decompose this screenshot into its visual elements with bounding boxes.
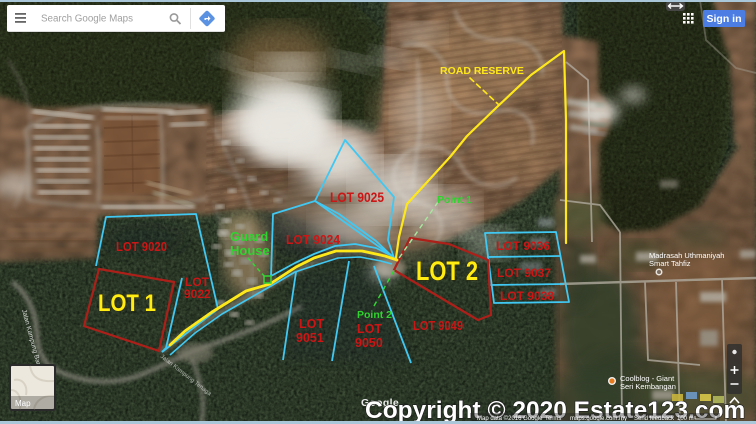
svg-text:LOT 9036: LOT 9036: [496, 239, 550, 253]
svg-text:9022: 9022: [184, 287, 211, 301]
svg-text:LOT 1: LOT 1: [98, 290, 156, 317]
svg-text:LOT 9024: LOT 9024: [286, 232, 341, 247]
svg-text:Smart Tahfiz: Smart Tahfiz: [649, 259, 691, 268]
svg-text:9051: 9051: [296, 331, 324, 345]
svg-text:Point 2: Point 2: [357, 309, 392, 321]
svg-text:Map: Map: [15, 399, 31, 408]
svg-text:Map data ©2016 Google: Map data ©2016 Google: [477, 415, 543, 422]
svg-text:LOT 9037: LOT 9037: [497, 266, 551, 280]
svg-text:LOT 2: LOT 2: [416, 256, 478, 286]
svg-text:LOT 9025: LOT 9025: [330, 190, 384, 205]
svg-text:Seri Kembangan: Seri Kembangan: [620, 382, 676, 391]
svg-text:LOT: LOT: [357, 322, 382, 336]
svg-text:Point 1: Point 1: [437, 194, 472, 206]
svg-text:Search Google Maps: Search Google Maps: [41, 14, 133, 25]
svg-text:LOT 9038: LOT 9038: [500, 289, 554, 303]
svg-text:LOT 9049: LOT 9049: [413, 319, 463, 333]
svg-text:ROAD RESERVE: ROAD RESERVE: [440, 65, 524, 77]
svg-text:Sign in: Sign in: [707, 13, 742, 25]
svg-text:Guard: Guard: [230, 229, 268, 244]
svg-text:LOT 9020: LOT 9020: [116, 240, 167, 254]
svg-text:LOT: LOT: [299, 317, 324, 331]
svg-text:House: House: [230, 243, 270, 258]
svg-text:9050: 9050: [355, 336, 383, 350]
